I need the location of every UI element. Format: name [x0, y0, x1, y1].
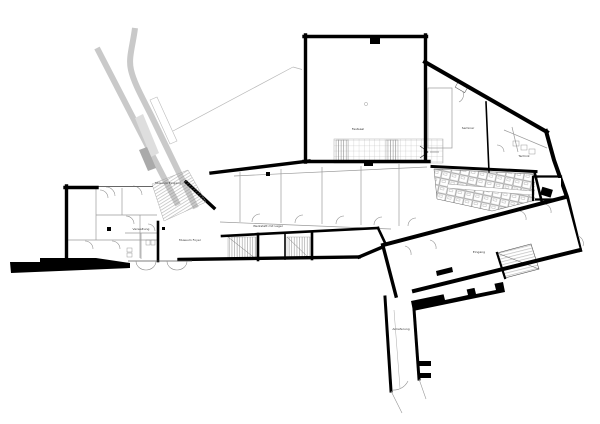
room-label: Technik — [517, 154, 529, 158]
column — [162, 227, 165, 230]
wall-tab — [364, 161, 373, 166]
roof-notch — [370, 35, 380, 44]
room-label: Anlieferung — [392, 327, 409, 331]
corridor-fin — [418, 373, 431, 378]
floor-plan-drawing: Festsaal Museum Eingang Museum Foyer Wer… — [0, 0, 600, 424]
stair-run — [336, 140, 348, 162]
room-label: Werkstatt mit Lager — [253, 224, 284, 228]
room-label: Verwaltung — [133, 227, 150, 231]
corridor-fin — [418, 361, 431, 366]
column — [266, 172, 270, 176]
room-label: Festsaal — [352, 127, 364, 131]
room-label: Eingang — [473, 250, 485, 254]
stair-run — [386, 140, 398, 162]
room-label: Museum Foyer — [179, 238, 202, 242]
column — [107, 227, 111, 231]
floor-plan-canvas: Festsaal Museum Eingang Museum Foyer Wer… — [0, 0, 600, 424]
room-label: Seminar — [462, 126, 475, 130]
room-label: Museum Eingang — [155, 181, 181, 185]
